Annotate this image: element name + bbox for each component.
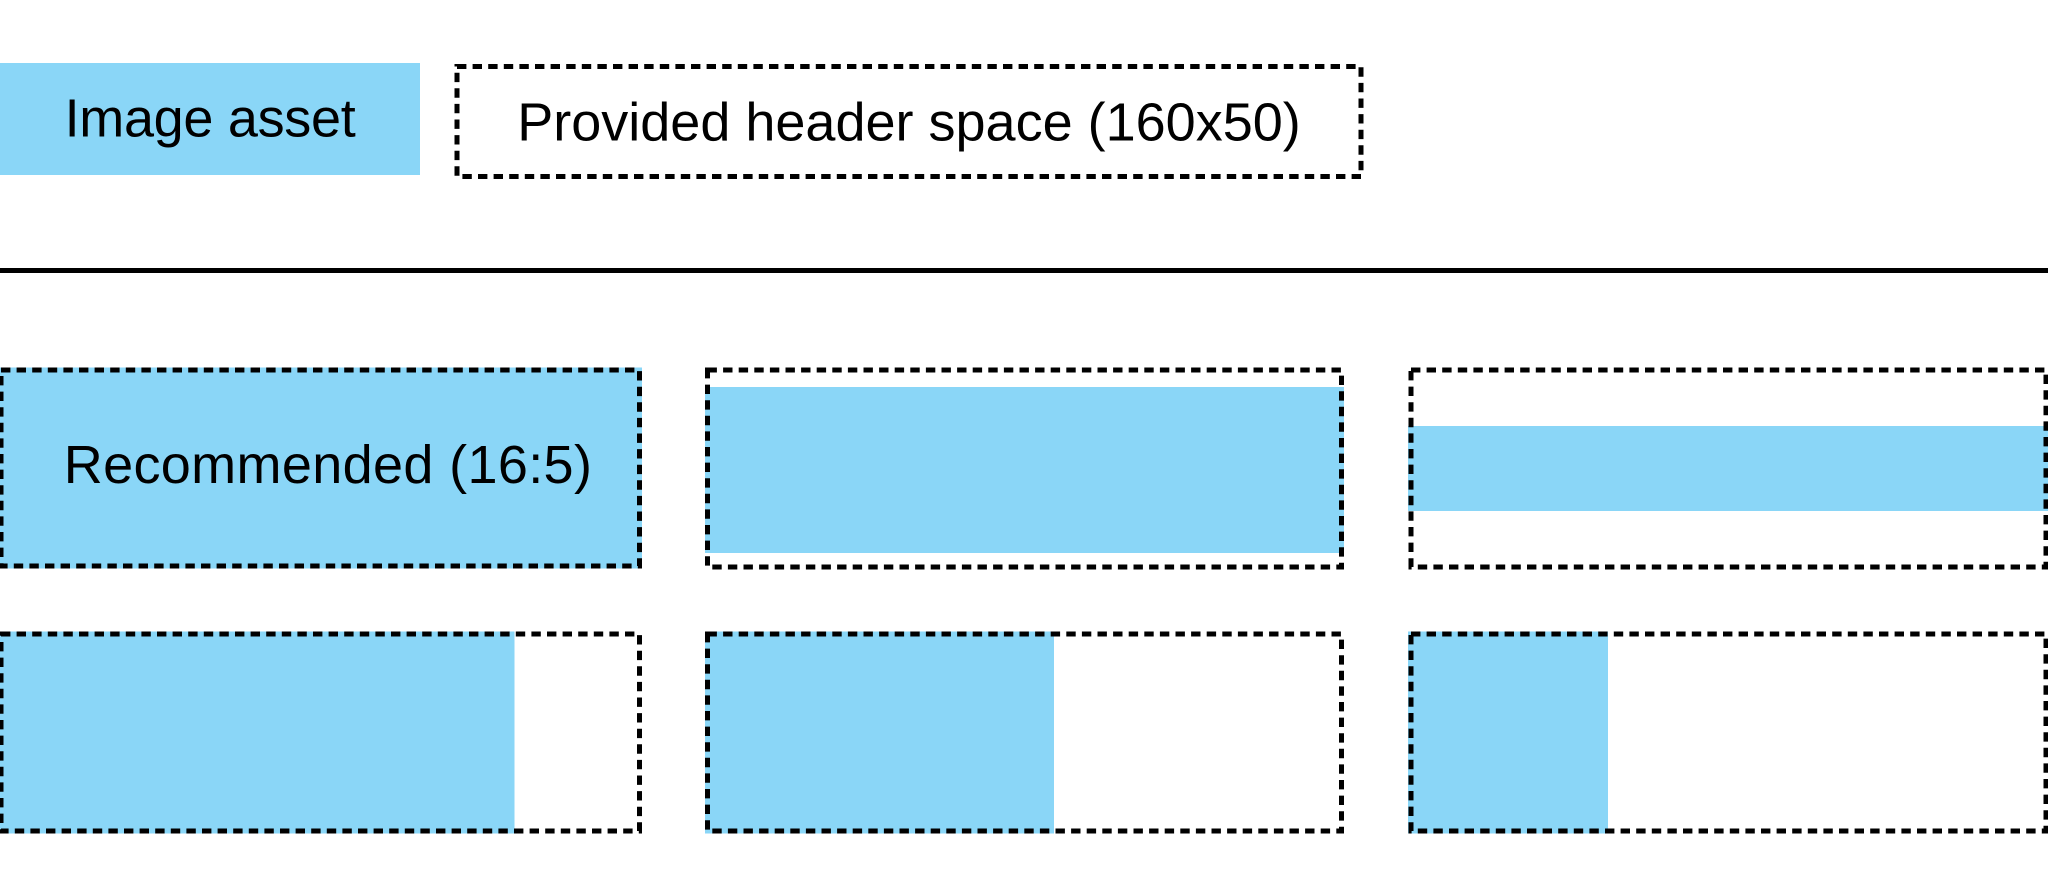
svg-text:Recommended (16:5): Recommended (16:5) — [64, 435, 593, 495]
svg-text:Provided header space (160x50): Provided header space (160x50) — [517, 93, 1301, 153]
svg-text:Image asset: Image asset — [65, 89, 356, 149]
